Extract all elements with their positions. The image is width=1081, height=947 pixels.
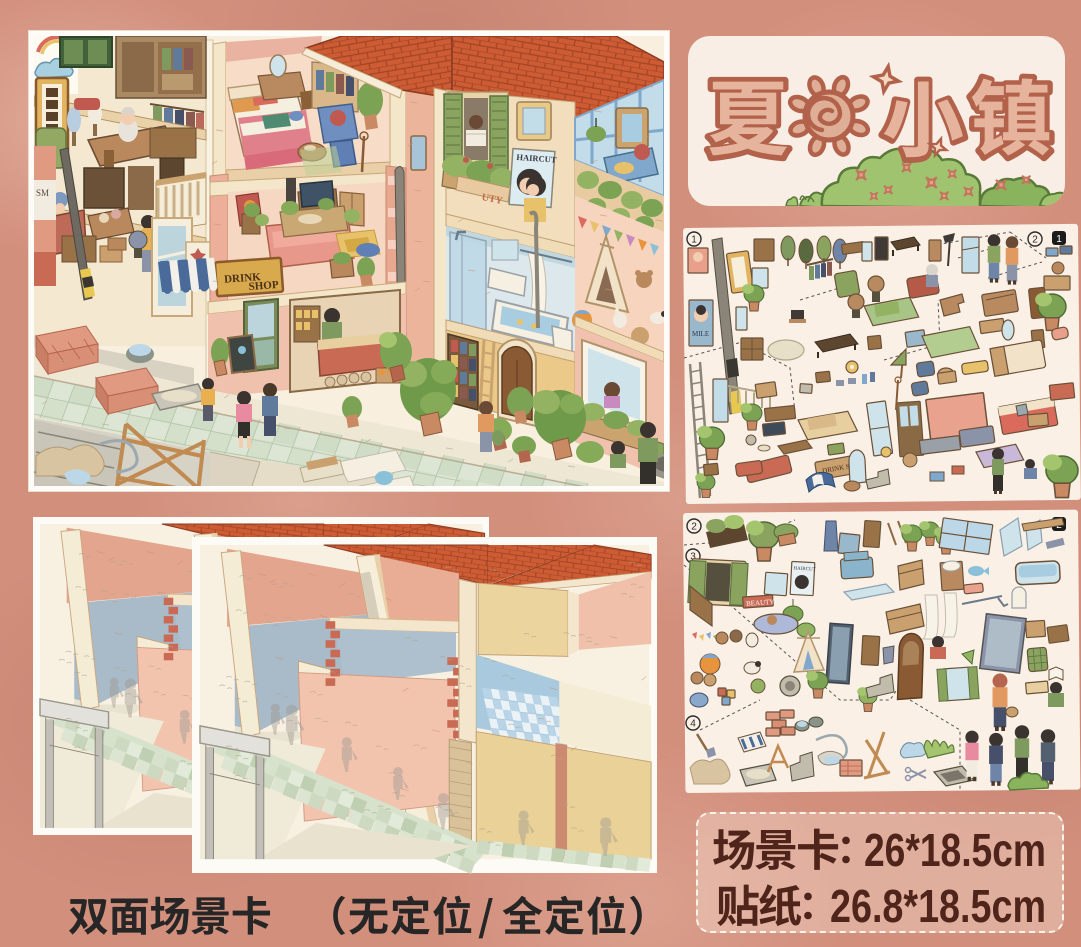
svg-text:26*18.5cm: 26*18.5cm (864, 824, 1046, 876)
svg-text:26.8*18.5cm: 26.8*18.5cm (830, 880, 1046, 932)
